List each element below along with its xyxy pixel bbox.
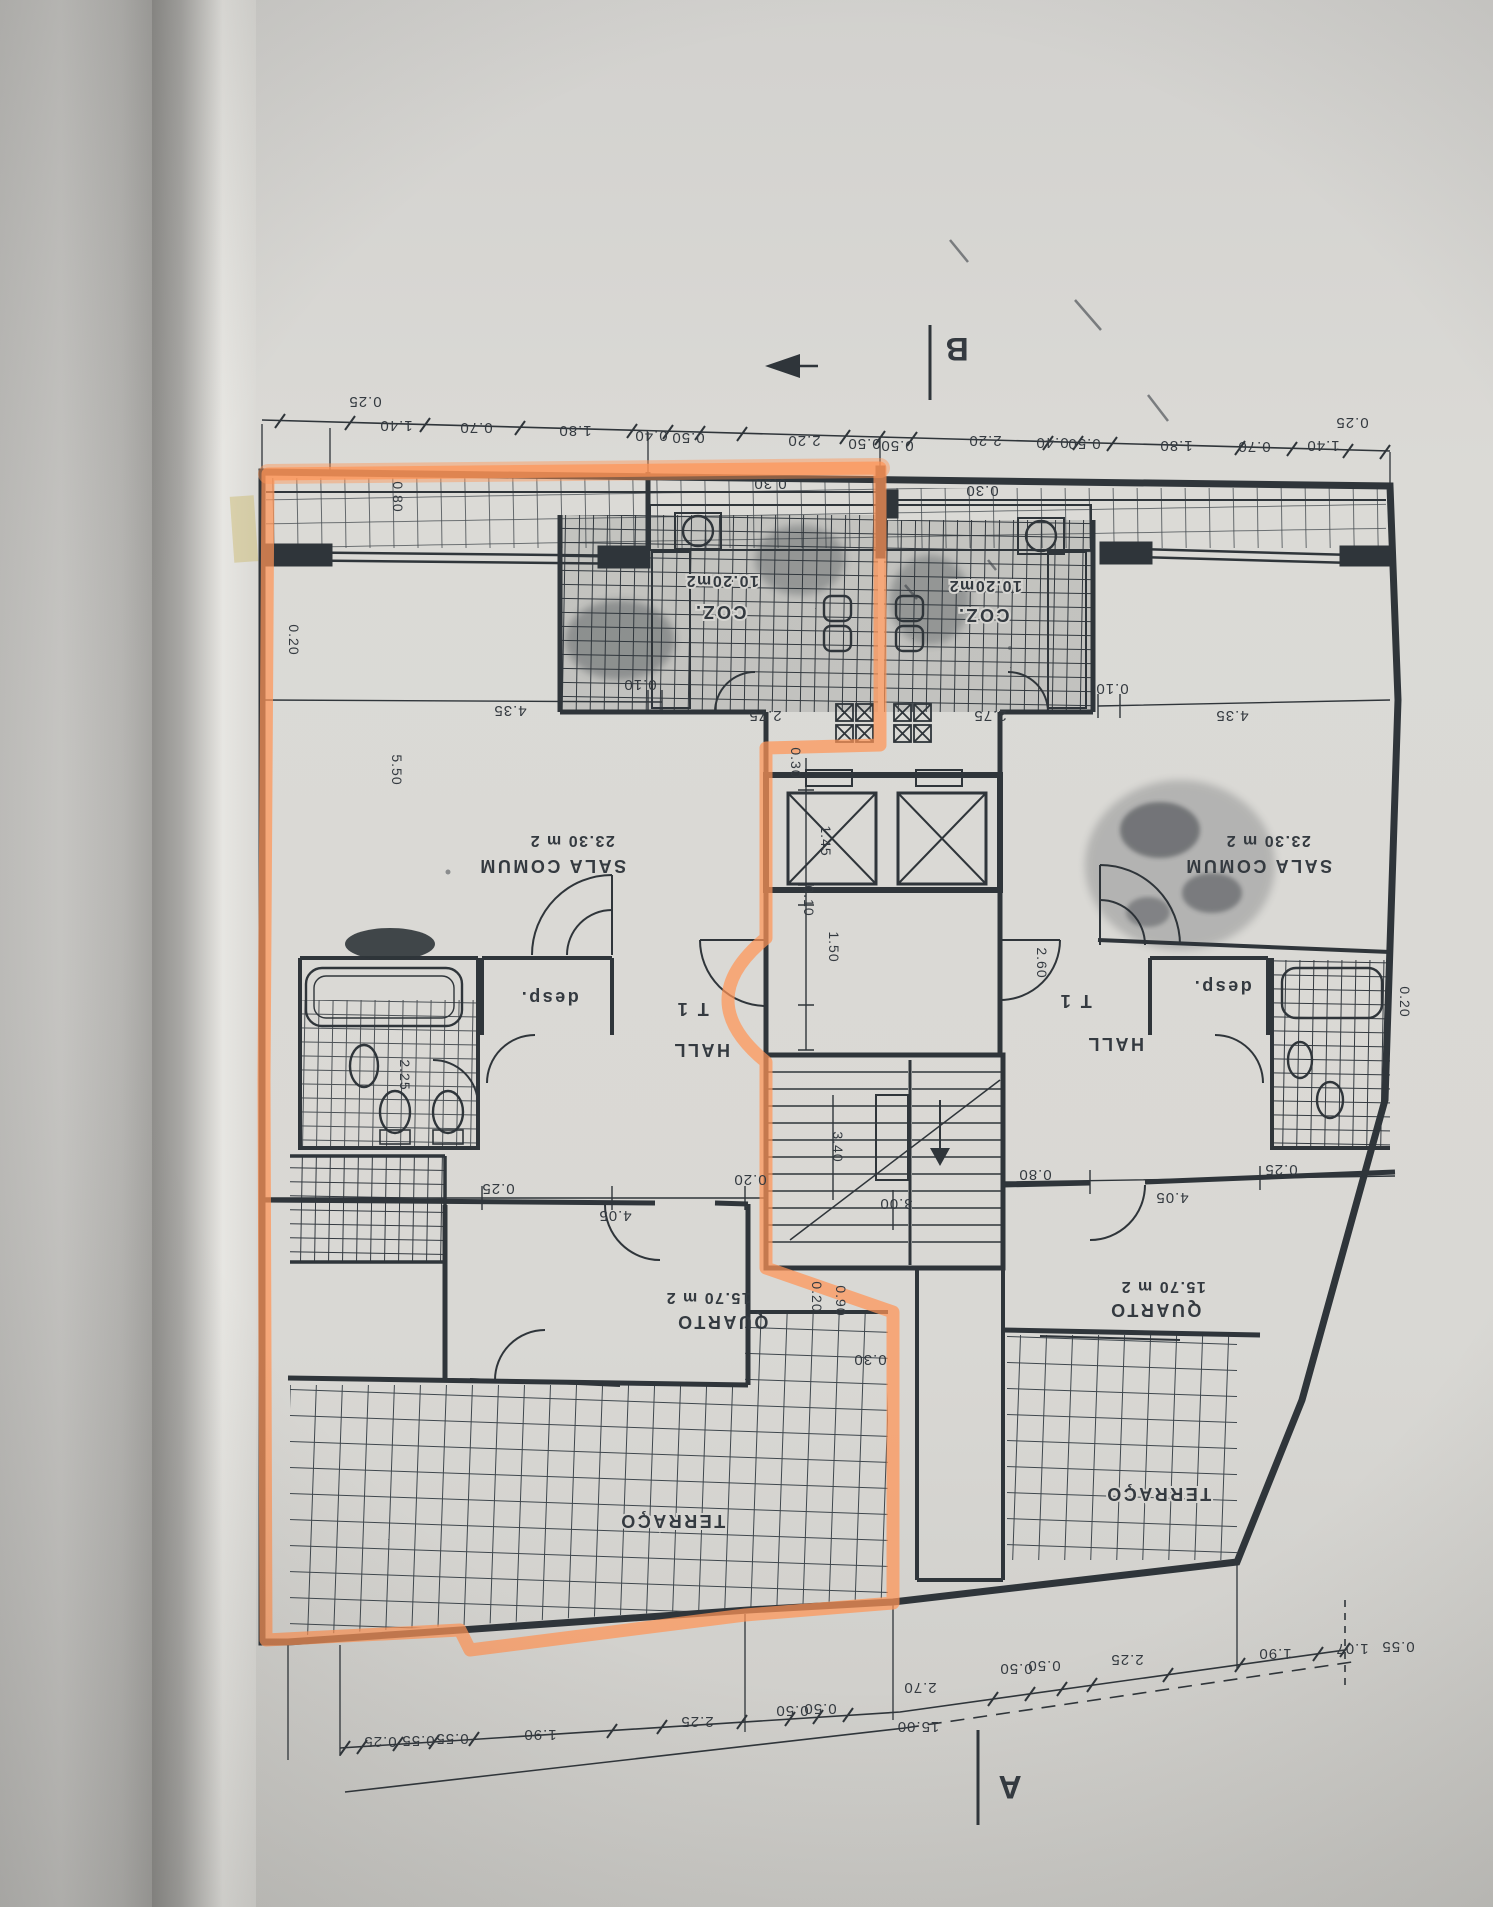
- dim-sala-width-right: 4.35: [1215, 707, 1248, 724]
- dim-bot-12: 1.90: [1258, 1645, 1291, 1662]
- dim-core-030b: 0.30: [853, 1351, 886, 1368]
- dim-top-6: 0.50: [671, 429, 704, 446]
- dim-core-010: 0.10: [801, 885, 817, 916]
- room-label-coz-right: COZ.: [957, 605, 1010, 625]
- dim-bot-7: 0.50: [803, 1700, 836, 1717]
- dim-core-150: 1.50: [826, 931, 842, 962]
- dim-bot-14: 0.55: [1381, 1638, 1414, 1655]
- floor-plan-drawing: B A 0.25 1.40 0.70 1.80 0.40 0.50 2.20 0…: [0, 0, 1493, 1907]
- dim-top-3: 0.70: [459, 419, 492, 436]
- unit-type-right: T 1: [1058, 991, 1092, 1011]
- dim-020-center-left: 0.20: [809, 1281, 825, 1312]
- dim-bot-5: 2.25: [680, 1713, 713, 1730]
- room-label-sala-left: SALA COMUM: [478, 856, 626, 876]
- dim-top-13: 1.80: [1159, 437, 1192, 454]
- dim-top-16: 0.25: [1335, 414, 1368, 431]
- dim-bot-10: 0.50: [1027, 1657, 1060, 1674]
- room-area-quarto-left: 15.70 m 2: [665, 1289, 751, 1306]
- dim-quarto-width-left: 4.05: [598, 1207, 631, 1224]
- dim-bot-13: 1.07: [1335, 1640, 1368, 1657]
- room-area-coz-left: 10.20m2: [685, 572, 759, 589]
- room-label-quarto-left: QUARTO: [676, 1312, 769, 1332]
- dim-quarto-025-left: 0.25: [481, 1180, 514, 1197]
- room-label-terraco-right: TERRAÇO: [1105, 1484, 1212, 1504]
- dim-stair-340: 3.40: [830, 1131, 846, 1162]
- dim-top-12: 0.50: [1067, 435, 1100, 452]
- room-label-sala-right: SALA COMUM: [1184, 856, 1332, 876]
- section-marker-a: A: [998, 1769, 1021, 1805]
- dim-balcony-left: 0.80: [390, 481, 406, 512]
- dim-top-18: 0.30: [965, 482, 998, 499]
- dim-entry-260-right: 2.60: [1034, 947, 1050, 978]
- dim-quarto-080-right: 0.80: [1018, 1166, 1051, 1183]
- dim-core-145: 1.45: [818, 825, 834, 856]
- room-area-sala-left: 23.30 m 2: [529, 832, 615, 849]
- dim-top-5: 0.40: [634, 427, 667, 444]
- room-label-desp-left: desp.: [519, 988, 579, 1008]
- dim-bot-3: 0.55: [435, 1730, 468, 1747]
- dim-top-7: 2.20: [787, 432, 820, 449]
- room-label-hall-right: HALL: [1086, 1034, 1144, 1054]
- room-area-coz-right: 10.20m2: [948, 577, 1022, 594]
- dim-sala-010-left: 0.10: [623, 676, 656, 693]
- dim-top-4: 1.80: [558, 422, 591, 439]
- dim-090-center-left: 0.90: [833, 1285, 849, 1316]
- dim-stair-300: 3.00: [879, 1195, 912, 1212]
- dim-top-2: 1.40: [379, 417, 412, 434]
- dim-hall-020-left: 0.20: [733, 1171, 766, 1188]
- unit-type-left: T 1: [675, 999, 709, 1019]
- dim-sala-height-left: 5.50: [389, 754, 405, 785]
- room-area-quarto-right: 15.70 m 2: [1120, 1278, 1206, 1295]
- door-swings: [433, 672, 1263, 1380]
- dim-top-10: 2.20: [968, 432, 1001, 449]
- photographed-floor-plan-page: B A 0.25 1.40 0.70 1.80 0.40 0.50 2.20 0…: [0, 0, 1493, 1907]
- dim-left-wall: 0.20: [286, 624, 302, 655]
- room-label-hall-left: HALL: [672, 1040, 730, 1060]
- dim-top-1: 0.25: [348, 393, 381, 410]
- dim-top-15: 1.40: [1306, 437, 1339, 454]
- room-label-quarto-right: QUARTO: [1109, 1300, 1202, 1320]
- dim-top-17: 0.30: [753, 475, 786, 492]
- dim-sala-width-left: 4.35: [493, 702, 526, 719]
- dim-top-11: 0.40: [1035, 434, 1068, 451]
- room-label-terraco-left: TERRAÇO: [619, 1511, 726, 1531]
- dim-total-1500: 15.00: [897, 1718, 940, 1735]
- dim-sala-010-right: 0.10: [1095, 680, 1128, 697]
- dim-top-8: 0.50: [847, 435, 880, 452]
- dim-right-wall-020: 0.20: [1397, 986, 1413, 1017]
- dim-bath-left: 2.25: [397, 1059, 413, 1090]
- dim-top-14: 0.70: [1237, 438, 1270, 455]
- room-label-coz-left: COZ.: [694, 602, 747, 622]
- dim-bot-11: 2.25: [1110, 1651, 1143, 1668]
- section-marker-b: B: [945, 331, 968, 367]
- room-area-sala-right: 23.30 m 2: [1225, 832, 1311, 849]
- dim-quarto-025-right: 0.25: [1264, 1161, 1297, 1178]
- dim-quarto-width-right: 4.05: [1155, 1189, 1188, 1206]
- dim-top-9: 0.50: [880, 437, 913, 454]
- dim-bot-8: 2.70: [903, 1679, 936, 1696]
- dim-bot-1: 0.25: [363, 1733, 396, 1750]
- dim-bot-2: 0.55: [401, 1732, 434, 1749]
- dim-coz-left: 2.75: [748, 707, 781, 724]
- room-label-desp-right: desp.: [1192, 977, 1252, 997]
- dim-bot-4: 1.90: [523, 1726, 556, 1743]
- dim-core-030: 0.30: [788, 747, 804, 778]
- dim-coz-right: 2.75: [973, 707, 1006, 724]
